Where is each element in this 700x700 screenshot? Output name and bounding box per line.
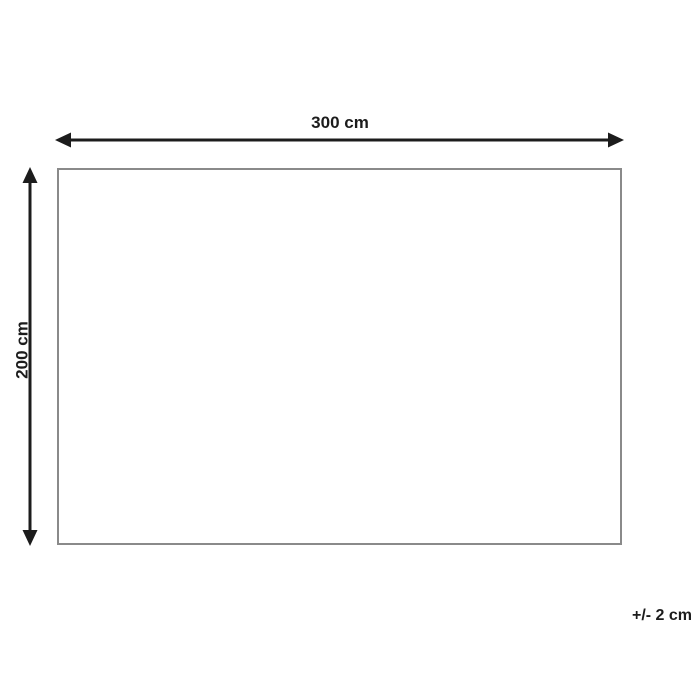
height-dimension-label: 200 cm — [14, 321, 31, 379]
arrowhead-down-icon — [23, 530, 38, 546]
arrowhead-right-icon — [608, 133, 624, 148]
dimension-diagram: 300 cm 200 cm +/- 2 cm — [0, 0, 700, 700]
width-dimension-label: 300 cm — [0, 114, 680, 131]
arrowhead-left-icon — [55, 133, 71, 148]
arrowhead-up-icon — [23, 167, 38, 183]
tolerance-label: +/- 2 cm — [632, 608, 692, 624]
product-outline-rectangle — [58, 169, 621, 544]
diagram-graphics — [0, 0, 700, 700]
width-dimension-arrow — [55, 133, 624, 148]
